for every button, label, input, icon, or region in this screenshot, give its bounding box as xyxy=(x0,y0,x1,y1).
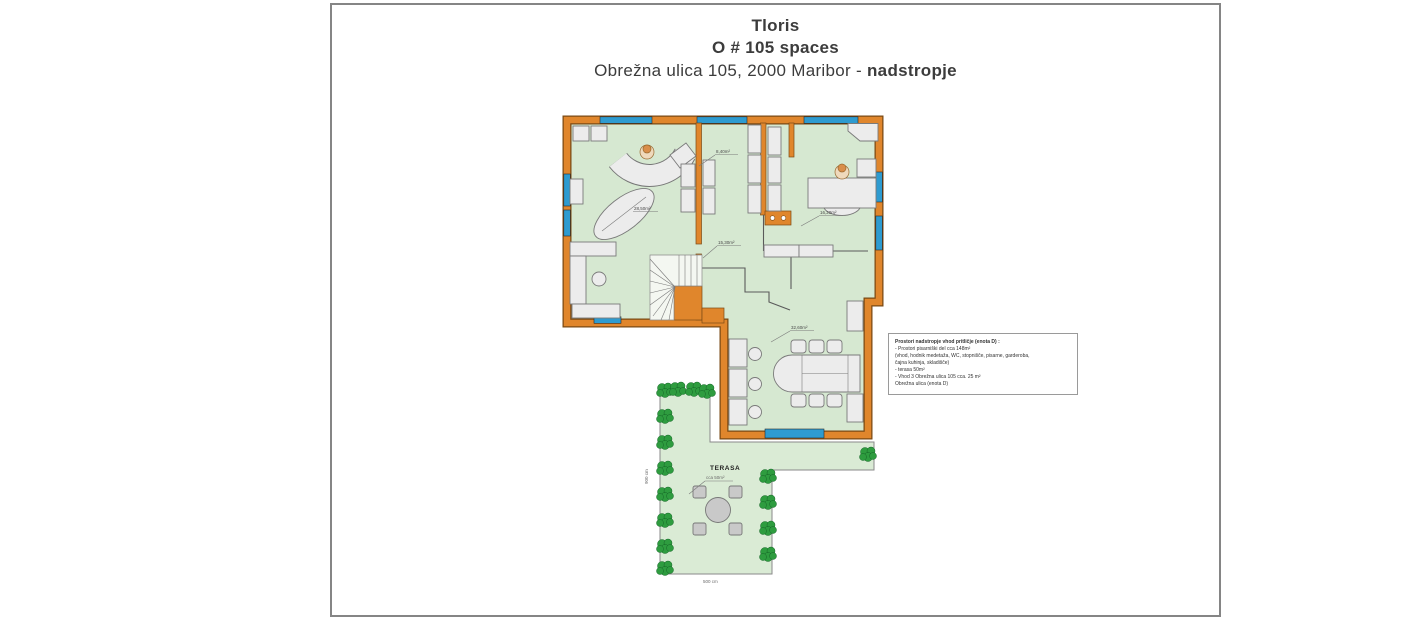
window xyxy=(600,117,652,124)
wc-unit xyxy=(765,211,791,225)
info-line: Obrežna ulica (enota D) xyxy=(895,381,1071,388)
cabinet xyxy=(748,185,761,213)
shelf xyxy=(799,245,833,257)
conference-chair xyxy=(827,394,842,407)
cabinet xyxy=(703,188,715,214)
cabinet xyxy=(573,126,589,141)
desk xyxy=(570,242,616,256)
desk xyxy=(808,178,876,208)
room-label-corridor: 15,30m² xyxy=(718,240,735,245)
window xyxy=(697,117,747,124)
corridor-furniture xyxy=(764,245,833,257)
terrace-bottom-dimension: 500 cm xyxy=(703,579,718,584)
terrace-left-dimension: 900 cm xyxy=(644,469,649,484)
cabinet xyxy=(847,394,863,422)
window xyxy=(876,172,883,202)
desk xyxy=(570,256,586,304)
plan-frame: Tloris O # 105 spaces Obrežna ulica 105,… xyxy=(330,3,1221,617)
terrace-chair xyxy=(693,486,706,498)
conference-chair xyxy=(749,348,762,361)
shelf xyxy=(681,164,695,187)
conference-chair xyxy=(791,394,806,407)
conference-chair xyxy=(809,340,824,353)
cabinet xyxy=(729,339,747,367)
conference-chair xyxy=(827,340,842,353)
cabinet xyxy=(572,304,620,318)
terrace-chair xyxy=(729,486,742,498)
terrace-door-window xyxy=(765,429,824,438)
info-line: - Prostori pisarniški del cca 148m² xyxy=(895,346,1071,353)
conference-chair xyxy=(749,378,762,391)
room-label-middle-room: 8,40m² xyxy=(716,149,731,154)
room-label-conference: 32,60m² xyxy=(791,325,808,330)
window xyxy=(564,210,571,236)
terrace-table xyxy=(706,498,731,523)
conference-chair xyxy=(749,406,762,419)
terrace-area-label: cca 50m² xyxy=(706,475,725,480)
info-line: čajna kuhinja, skladišče) xyxy=(895,360,1071,367)
shelf xyxy=(857,159,876,177)
cabinet xyxy=(729,399,747,425)
window xyxy=(876,216,883,250)
room-label-left-office: 28,50m² xyxy=(634,206,651,211)
room-label-right-office: 16,20m² xyxy=(820,210,837,215)
terrace-chair xyxy=(729,523,742,535)
conference-chair xyxy=(791,340,806,353)
info-box: Prostori nadstropje vhod pritličje (enot… xyxy=(888,333,1078,395)
info-line: Prostori nadstropje vhod pritličje (enot… xyxy=(895,339,1071,346)
window xyxy=(804,117,858,124)
terrace-chair xyxy=(693,523,706,535)
office-chair xyxy=(592,272,606,286)
cabinet xyxy=(768,185,781,211)
shelf xyxy=(764,245,799,257)
conference-chair xyxy=(809,394,824,407)
cabinet xyxy=(591,126,607,141)
cabinet xyxy=(703,160,715,186)
cabinet xyxy=(748,155,761,183)
cabinet xyxy=(847,301,863,331)
shelf xyxy=(681,189,695,212)
cabinet xyxy=(748,125,761,153)
floor-plan-svg: TERASA cca 50m² 500 cm 900 cm xyxy=(332,5,1223,618)
window xyxy=(564,174,571,206)
terrace-label: TERASA xyxy=(710,465,740,472)
cabinet xyxy=(768,157,781,183)
cabinet xyxy=(768,127,781,155)
info-line: - terasa 50m² xyxy=(895,367,1071,374)
info-line: (vhod, hodnik medetaža, WC, stopnišče, p… xyxy=(895,353,1071,360)
cabinet xyxy=(729,369,747,397)
cabinet xyxy=(570,179,583,204)
info-line: - Vhod 3 Obrežna ulica 105 cca. 25 m² xyxy=(895,374,1071,381)
stair-landing xyxy=(674,286,702,320)
